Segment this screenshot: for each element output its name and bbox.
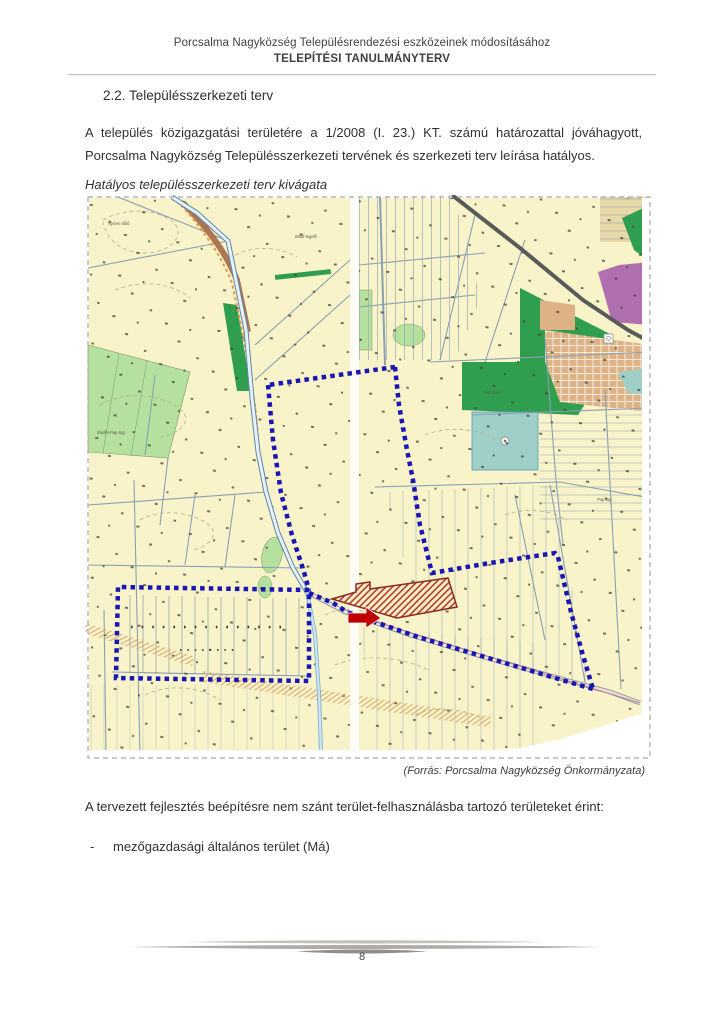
map-label: Nyíres-dűlő <box>108 221 130 226</box>
paragraph-conclusion: A tervezett fejlesztés beépítésre nem sz… <box>85 799 642 814</box>
page-number: 8 <box>0 951 724 963</box>
map-label: Pap-tag <box>597 497 612 502</box>
divider-line-main <box>128 945 600 949</box>
map-label: Pap-tava <box>483 390 500 395</box>
map-source-attribution: (Forrás: Porcsalma Nagyközség Önkormányz… <box>85 765 645 777</box>
structure-plan-map: Nyíres-dűlő Boldi-legelő Badlói-Pap-tag … <box>85 195 653 761</box>
header-line-1: Porcsalma Nagyközség Településrendezési … <box>0 37 724 49</box>
map-label: Boldi-legelő <box>295 234 318 239</box>
paragraph-intro: A település közigazgatási területére a 1… <box>85 122 642 167</box>
map-label: Badlói-Pap-tag <box>97 430 125 435</box>
section-heading: 2.2. Településszerkezeti terv <box>103 88 273 103</box>
document-page: { "doc": { "header_line1": "Porcsalma Na… <box>0 0 724 1024</box>
scan-fold <box>350 198 359 752</box>
map-image: Nyíres-dűlő Boldi-legelő Badlói-Pap-tag … <box>85 195 653 761</box>
bullet-marker: - <box>90 839 94 854</box>
bullet-item: mezőgazdasági általános terület (Má) <box>113 839 330 854</box>
header-rule <box>68 74 656 75</box>
divider-line-upper <box>185 940 545 943</box>
header-line-2: TELEPÍTÉSI TANULMÁNYTERV <box>0 53 724 65</box>
map-caption: Hatályos településszerkezeti terv kivága… <box>85 177 327 192</box>
